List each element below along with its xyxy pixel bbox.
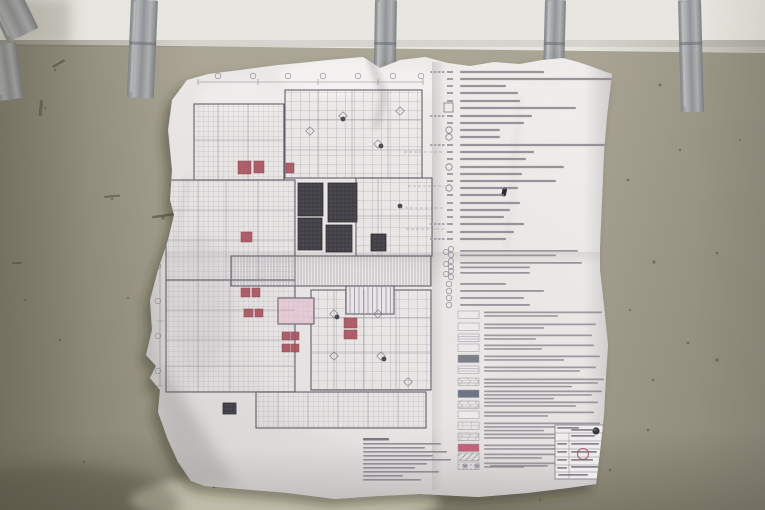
photo-scene — [0, 0, 765, 510]
vignette-right — [695, 0, 765, 510]
photograph — [0, 0, 765, 510]
grain-overlay — [0, 0, 765, 510]
vignette-left — [0, 0, 90, 510]
